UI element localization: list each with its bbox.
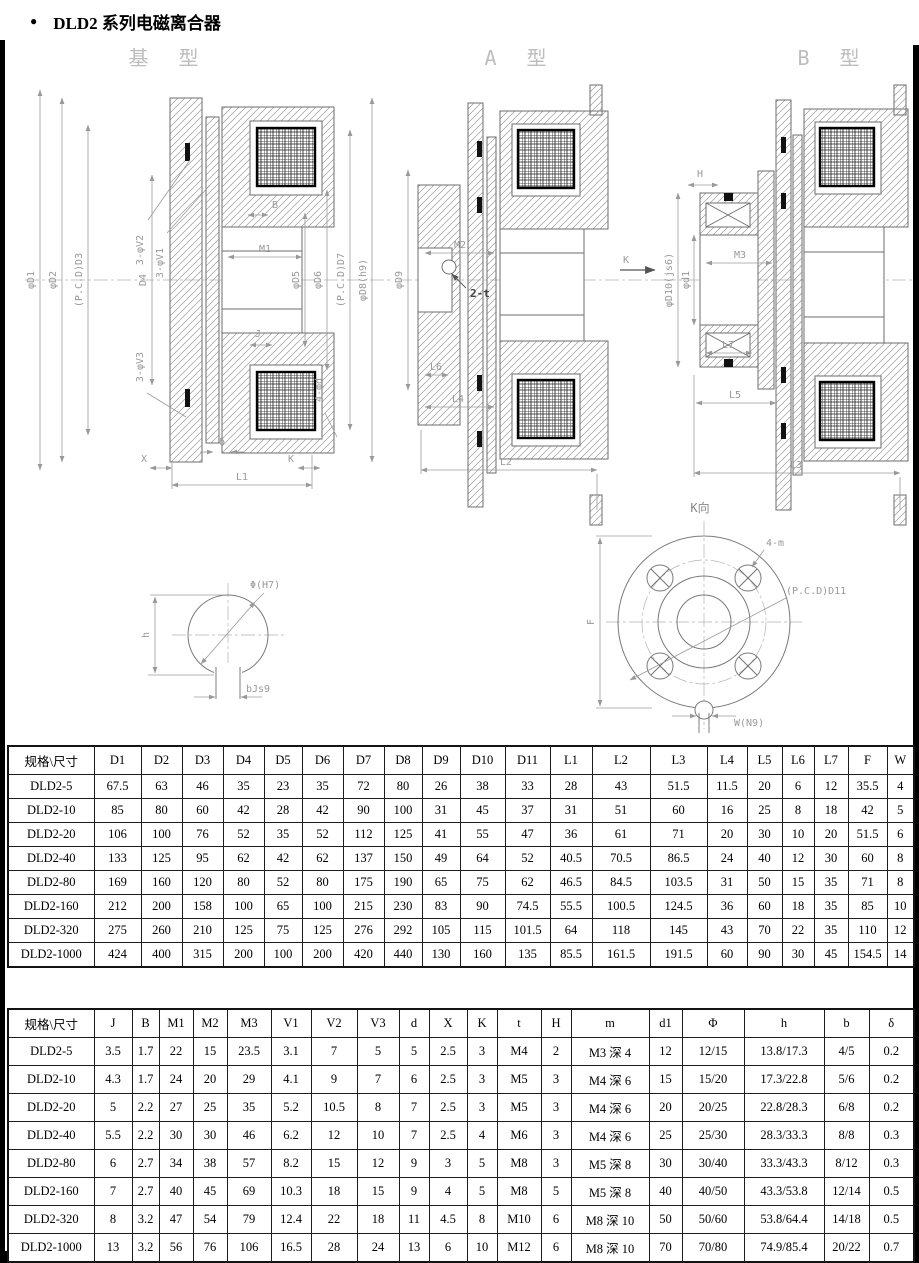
column-header: D1 xyxy=(94,746,141,775)
table-row: DLD2-8016916012080528017519065756246.584… xyxy=(8,871,914,895)
column-header: H xyxy=(541,1009,571,1038)
table-cell: 1.7 xyxy=(132,1038,159,1066)
table-row: DLD2-10858060422842901003145373151601625… xyxy=(8,799,914,823)
table-cell: M4 xyxy=(497,1038,541,1066)
drawing-shaft-section: Φ(H7) h bJs9 xyxy=(141,580,286,699)
table-cell: 150 xyxy=(384,847,422,871)
table-cell: 100 xyxy=(302,895,343,919)
table-cell: 8.2 xyxy=(271,1150,311,1178)
page-title: DLD2 系列电磁离合器 xyxy=(53,9,221,34)
table-cell: 35 xyxy=(223,775,264,799)
table-cell: 50/60 xyxy=(682,1206,744,1234)
table-cell: 40 xyxy=(159,1178,193,1206)
table-cell: 33.3/43.3 xyxy=(744,1150,824,1178)
table-cell: 76 xyxy=(193,1234,227,1263)
table-cell: 12 xyxy=(782,847,814,871)
table-cell: 43 xyxy=(707,919,747,943)
key-mark xyxy=(724,193,733,201)
table-cell: 52 xyxy=(223,823,264,847)
type-a-label: A 型 xyxy=(484,46,555,70)
table-cell: 2.2 xyxy=(132,1094,159,1122)
table-cell: 125 xyxy=(302,919,343,943)
table-cell: 8 xyxy=(887,847,914,871)
section-title-row: ● DLD2 系列电磁离合器 xyxy=(30,9,221,34)
table-cell: 62 xyxy=(223,847,264,871)
table-cell: 35 xyxy=(814,895,848,919)
row-header: DLD2-20 xyxy=(8,823,94,847)
table-cell: 24 xyxy=(159,1066,193,1094)
table-cell: 420 xyxy=(343,943,384,968)
column-header: D6 xyxy=(302,746,343,775)
table-cell: 160 xyxy=(141,871,182,895)
table-cell: 4.3 xyxy=(94,1066,132,1094)
row-header: DLD2-160 xyxy=(8,1178,94,1206)
table-cell: 25 xyxy=(193,1094,227,1122)
dim-label: φD1 xyxy=(26,271,37,289)
table-cell: 49 xyxy=(422,847,460,871)
table-cell: 45 xyxy=(814,943,848,968)
table-cell: 18 xyxy=(311,1178,357,1206)
row-header: DLD2-40 xyxy=(8,847,94,871)
keyway-mask xyxy=(214,663,242,697)
tap-hole xyxy=(442,260,456,274)
table-cell: 45 xyxy=(460,799,505,823)
table-cell: 34 xyxy=(159,1150,193,1178)
table-cell: 10 xyxy=(782,823,814,847)
table-cell: 90 xyxy=(747,943,782,968)
table-cell: 18 xyxy=(782,895,814,919)
table-cell: 52 xyxy=(302,823,343,847)
table-cell: 2.5 xyxy=(429,1122,467,1150)
table-cell: 110 xyxy=(848,919,887,943)
table-cell: 125 xyxy=(223,919,264,943)
column-header: Φ xyxy=(682,1009,744,1038)
table-cell: M10 xyxy=(497,1206,541,1234)
table-cell: 24 xyxy=(357,1234,399,1263)
table-cell: 5 xyxy=(541,1178,571,1206)
table-cell: 424 xyxy=(94,943,141,968)
table-cell: 74.5 xyxy=(505,895,550,919)
table-cell: 18 xyxy=(814,799,848,823)
table-cell: M5 深 8 xyxy=(571,1178,649,1206)
table-cell: 80 xyxy=(141,799,182,823)
table-cell: 22.8/28.3 xyxy=(744,1094,824,1122)
table-cell: 7 xyxy=(357,1066,399,1094)
table-cell: 22 xyxy=(159,1038,193,1066)
table-cell: 64 xyxy=(550,919,592,943)
table-cell: 56 xyxy=(159,1234,193,1263)
dimension-table-2: 规格\尺寸JBM1M2M3V1V2V3dXKtHmd1Φhbδ DLD2-53.… xyxy=(7,1008,915,1263)
row-header: DLD2-320 xyxy=(8,1206,94,1234)
table-cell: 15 xyxy=(782,871,814,895)
table-cell: 135 xyxy=(505,943,550,968)
table-cell: 6 xyxy=(541,1206,571,1234)
table-cell: 4 xyxy=(467,1122,497,1150)
table-cell: 30 xyxy=(747,823,782,847)
table-cell: 4.5 xyxy=(429,1206,467,1234)
dim-label: φD5 xyxy=(291,271,302,289)
table-cell: 80 xyxy=(384,775,422,799)
table-cell: 14 xyxy=(887,943,914,968)
table-cell: 100 xyxy=(141,823,182,847)
table-cell: 20 xyxy=(193,1066,227,1094)
table-cell: 15 xyxy=(649,1066,682,1094)
bolt-hole xyxy=(735,653,761,679)
table-cell: 7 xyxy=(94,1178,132,1206)
table-cell: 51.5 xyxy=(848,823,887,847)
table-cell: 5 xyxy=(94,1094,132,1122)
column-header: L1 xyxy=(550,746,592,775)
dim-label: (P.C.D)D7 xyxy=(336,253,347,307)
table-row: DLD2-567.563463523357280263833284351.511… xyxy=(8,775,914,799)
table-cell: 42 xyxy=(302,799,343,823)
key-mark xyxy=(724,359,733,367)
table-cell: 53.8/64.4 xyxy=(744,1206,824,1234)
column-header: 规格\尺寸 xyxy=(8,746,94,775)
dim-label: 4-m xyxy=(766,538,784,549)
table-cell: 22 xyxy=(311,1206,357,1234)
table-cell: 57 xyxy=(227,1150,271,1178)
dim-label: H xyxy=(697,169,703,180)
table-cell: 70/80 xyxy=(682,1234,744,1263)
table-cell: 8 xyxy=(467,1206,497,1234)
table-cell: 11 xyxy=(399,1206,429,1234)
table-cell: 191.5 xyxy=(650,943,707,968)
table-cell: 95 xyxy=(182,847,223,871)
table-cell: 4.1 xyxy=(271,1066,311,1094)
table-cell: 38 xyxy=(193,1150,227,1178)
table-cell: 20/25 xyxy=(682,1094,744,1122)
table-cell: 69 xyxy=(227,1178,271,1206)
table-cell: 16 xyxy=(707,799,747,823)
row-header: DLD2-1000 xyxy=(8,943,94,968)
table-cell: 20 xyxy=(707,823,747,847)
table-cell: 120 xyxy=(182,871,223,895)
table-cell: 43.3/53.8 xyxy=(744,1178,824,1206)
table-cell: 160 xyxy=(460,943,505,968)
table-cell: 12 xyxy=(357,1150,399,1178)
table-cell: 75 xyxy=(264,919,302,943)
table-cell: 100 xyxy=(384,799,422,823)
table-cell: 6 xyxy=(429,1234,467,1263)
shaft-bore xyxy=(804,227,884,343)
key-mark xyxy=(477,197,482,213)
table-cell: 5 xyxy=(357,1038,399,1066)
table-row: DLD2-20106100765235521121254155473661712… xyxy=(8,823,914,847)
table-cell: 12/14 xyxy=(824,1178,869,1206)
table-cell: 3 xyxy=(541,1094,571,1122)
table-cell: M8 深 10 xyxy=(571,1206,649,1234)
dim-label: bJs9 xyxy=(246,684,270,695)
dim-label: L4 xyxy=(452,394,464,405)
table-cell: 10.3 xyxy=(271,1178,311,1206)
hatched-section xyxy=(776,100,791,510)
table-cell: 71 xyxy=(650,823,707,847)
table-cell: 37 xyxy=(505,799,550,823)
dim-label: Φ(H7) xyxy=(250,580,280,591)
table-cell: 276 xyxy=(343,919,384,943)
row-header: DLD2-20 xyxy=(8,1094,94,1122)
table-cell: 12 xyxy=(311,1122,357,1150)
drawing-type-b: B 型 H φD10(js6) φd1 xyxy=(662,46,915,525)
table-cell: 125 xyxy=(141,847,182,871)
key-mark xyxy=(185,389,190,407)
table-cell: 1.7 xyxy=(132,1066,159,1094)
row-header: DLD2-10 xyxy=(8,1066,94,1094)
table-cell: 23 xyxy=(264,775,302,799)
table-cell: 5.5 xyxy=(94,1122,132,1150)
table-cell: 11.5 xyxy=(707,775,747,799)
table-cell: 0.3 xyxy=(869,1150,914,1178)
table-cell: 67.5 xyxy=(94,775,141,799)
row-header: DLD2-160 xyxy=(8,895,94,919)
table-cell: 20/22 xyxy=(824,1234,869,1263)
type-b-label: B 型 xyxy=(797,46,868,70)
table-cell: 230 xyxy=(384,895,422,919)
table-cell: 10 xyxy=(887,895,914,919)
coil-winding xyxy=(518,130,574,188)
table-cell: 28 xyxy=(550,775,592,799)
table-cell: 62 xyxy=(505,871,550,895)
table-cell: M4 深 6 xyxy=(571,1066,649,1094)
table-cell: 86.5 xyxy=(650,847,707,871)
table-cell: 25 xyxy=(649,1122,682,1150)
table-cell: 51 xyxy=(592,799,650,823)
table-cell: 35 xyxy=(302,775,343,799)
coil-winding xyxy=(257,372,315,430)
column-header: D5 xyxy=(264,746,302,775)
table-cell: 5.2 xyxy=(271,1094,311,1122)
dim-label: φD10(js6) xyxy=(664,253,675,307)
column-header: W xyxy=(887,746,914,775)
column-header: δ xyxy=(869,1009,914,1038)
table-cell: 5 xyxy=(467,1150,497,1178)
dim-label: φd1 xyxy=(681,271,692,289)
table-cell: 13 xyxy=(94,1234,132,1263)
table-cell: 25/30 xyxy=(682,1122,744,1150)
table-cell: 0.7 xyxy=(869,1234,914,1263)
dim-label: φD2 xyxy=(48,271,59,289)
table-cell: 27 xyxy=(159,1094,193,1122)
table-cell: 31 xyxy=(422,799,460,823)
row-header: DLD2-40 xyxy=(8,1122,94,1150)
table-cell: 83 xyxy=(422,895,460,919)
table-cell: 15 xyxy=(311,1150,357,1178)
table-cell: 33 xyxy=(505,775,550,799)
table-cell: 54 xyxy=(193,1206,227,1234)
shaft-bore xyxy=(222,227,302,333)
dim-label: δ xyxy=(219,437,225,448)
table-cell: 25 xyxy=(747,799,782,823)
table-cell: 100 xyxy=(223,895,264,919)
table-cell: 60 xyxy=(650,799,707,823)
column-header: h xyxy=(744,1009,824,1038)
table-cell: 215 xyxy=(343,895,384,919)
table-cell: 14/18 xyxy=(824,1206,869,1234)
table-cell: M3 深 4 xyxy=(571,1038,649,1066)
hatched-section xyxy=(758,171,774,389)
table-cell: 12.4 xyxy=(271,1206,311,1234)
table-cell: 46 xyxy=(227,1122,271,1150)
table-cell: 60 xyxy=(848,847,887,871)
table-cell: 20 xyxy=(747,775,782,799)
table-cell: 0.2 xyxy=(869,1066,914,1094)
column-header: D8 xyxy=(384,746,422,775)
dim-label: (P.C.D)D11 xyxy=(786,586,846,597)
key-mark xyxy=(781,137,786,153)
table-cell: M6 xyxy=(497,1122,541,1150)
table-cell: 161.5 xyxy=(592,943,650,968)
table-cell: M8 xyxy=(497,1150,541,1178)
table-cell: 8/8 xyxy=(824,1122,869,1150)
dim-label: J xyxy=(255,329,261,340)
table-cell: 36 xyxy=(707,895,747,919)
row-header: DLD2-80 xyxy=(8,871,94,895)
row-header: DLD2-1000 xyxy=(8,1234,94,1263)
table-cell: 154.5 xyxy=(848,943,887,968)
dim-label: B xyxy=(272,200,278,211)
table-cell: 4 xyxy=(429,1178,467,1206)
table-cell: 3.1 xyxy=(271,1038,311,1066)
table-cell: 8/12 xyxy=(824,1150,869,1178)
table-cell: M5 xyxy=(497,1066,541,1094)
column-header: D9 xyxy=(422,746,460,775)
bullet-icon: ● xyxy=(30,14,37,29)
mount-tab xyxy=(590,85,602,115)
table-cell: M5 xyxy=(497,1094,541,1122)
table-cell: 75 xyxy=(460,871,505,895)
pilot-bore xyxy=(418,248,452,312)
table-header-row: 规格\尺寸D1D2D3D4D5D6D7D8D9D10D11L1L2L3L4L5L… xyxy=(8,746,914,775)
column-header: L6 xyxy=(782,746,814,775)
coil-winding xyxy=(518,380,574,438)
table-cell: 2.7 xyxy=(132,1150,159,1178)
table-cell: 13 xyxy=(399,1234,429,1263)
dim-label: D4 xyxy=(138,274,149,286)
dim-label: 3-φV3 xyxy=(135,352,146,382)
table-row: DLD2-1000133.2567610616.5282413610M126M8… xyxy=(8,1234,914,1263)
row-header: DLD2-5 xyxy=(8,1038,94,1066)
table-cell: 20 xyxy=(814,823,848,847)
shaft-bore xyxy=(700,235,758,325)
column-header: M3 xyxy=(227,1009,271,1038)
column-header: D4 xyxy=(223,746,264,775)
table-cell: 40/50 xyxy=(682,1178,744,1206)
column-header: D7 xyxy=(343,746,384,775)
column-header: M1 xyxy=(159,1009,193,1038)
column-header: K xyxy=(467,1009,497,1038)
table-cell: 43 xyxy=(592,775,650,799)
key-mark xyxy=(477,141,482,157)
column-header: b xyxy=(824,1009,869,1038)
dim-label: M2 xyxy=(454,240,466,251)
table-cell: 200 xyxy=(223,943,264,968)
drawing-base-type: 基 型 φD1 φD2 (P.C.D)D3 D4 φD5 φD6 (P.C.D)… xyxy=(25,46,392,489)
table-cell: 79 xyxy=(227,1206,271,1234)
dim-label: L3 xyxy=(790,460,802,471)
table-cell: 62 xyxy=(302,847,343,871)
table-cell: 125 xyxy=(384,823,422,847)
column-header: L3 xyxy=(650,746,707,775)
table-cell: 2 xyxy=(541,1038,571,1066)
table-cell: 85 xyxy=(94,799,141,823)
table-cell: 20 xyxy=(649,1094,682,1122)
table-cell: 65 xyxy=(264,895,302,919)
dim-label: (P.C.D)D3 xyxy=(74,253,85,307)
dim-label: K xyxy=(288,454,294,465)
table-cell: 5/6 xyxy=(824,1066,869,1094)
table-cell: 200 xyxy=(141,895,182,919)
column-header: V1 xyxy=(271,1009,311,1038)
table-cell: 38 xyxy=(460,775,505,799)
table-cell: 65 xyxy=(422,871,460,895)
table-cell: 40 xyxy=(649,1178,682,1206)
table-cell: 0.2 xyxy=(869,1094,914,1122)
column-header: L2 xyxy=(592,746,650,775)
table-cell: 8 xyxy=(357,1094,399,1122)
table-cell: 55 xyxy=(460,823,505,847)
table-cell: 70 xyxy=(649,1234,682,1263)
table-cell: 8 xyxy=(94,1206,132,1234)
column-header: d1 xyxy=(649,1009,682,1038)
dim-label: M1 xyxy=(259,244,271,255)
table-cell: 112 xyxy=(343,823,384,847)
table-cell: 42 xyxy=(223,799,264,823)
table-header-row: 规格\尺寸JBM1M2M3V1V2V3dXKtHmd1Φhbδ xyxy=(8,1009,914,1038)
row-header: DLD2-320 xyxy=(8,919,94,943)
key-mark xyxy=(781,367,786,383)
table-cell: 30 xyxy=(814,847,848,871)
hatched-section xyxy=(206,117,219,443)
table-cell: 80 xyxy=(223,871,264,895)
table-cell: 3.5 xyxy=(94,1038,132,1066)
table-cell: 35 xyxy=(814,871,848,895)
table-cell: 47 xyxy=(159,1206,193,1234)
table-cell: 12 xyxy=(887,919,914,943)
table-cell: 5 xyxy=(399,1038,429,1066)
table-cell: 6 xyxy=(541,1234,571,1263)
table-cell: 5 xyxy=(467,1178,497,1206)
leader-line xyxy=(255,593,264,602)
table-cell: 13.8/17.3 xyxy=(744,1038,824,1066)
column-header: D3 xyxy=(182,746,223,775)
table-cell: 40 xyxy=(747,847,782,871)
table-cell: M4 深 6 xyxy=(571,1094,649,1122)
key-mark xyxy=(477,431,482,447)
table-cell: 17.3/22.8 xyxy=(744,1066,824,1094)
table-cell: 30 xyxy=(782,943,814,968)
row-header: DLD2-10 xyxy=(8,799,94,823)
table-cell: 100 xyxy=(264,943,302,968)
table-cell: 212 xyxy=(94,895,141,919)
table-cell: 9 xyxy=(399,1150,429,1178)
table-cell: 41 xyxy=(422,823,460,847)
table-cell: 190 xyxy=(384,871,422,895)
dim-label: 3-φV2 xyxy=(135,235,146,265)
column-header: M2 xyxy=(193,1009,227,1038)
table-cell: 61 xyxy=(592,823,650,847)
dim-label: φD6 xyxy=(313,271,324,289)
table-cell: 10 xyxy=(467,1234,497,1263)
table-cell: 3 xyxy=(541,1066,571,1094)
table-cell: 2.5 xyxy=(429,1094,467,1122)
table-cell: 15 xyxy=(357,1178,399,1206)
key-mark xyxy=(477,375,482,391)
table-cell: 47 xyxy=(505,823,550,847)
table-cell: 7 xyxy=(399,1122,429,1150)
table-cell: 6 xyxy=(782,775,814,799)
dim-label: h xyxy=(141,632,152,638)
